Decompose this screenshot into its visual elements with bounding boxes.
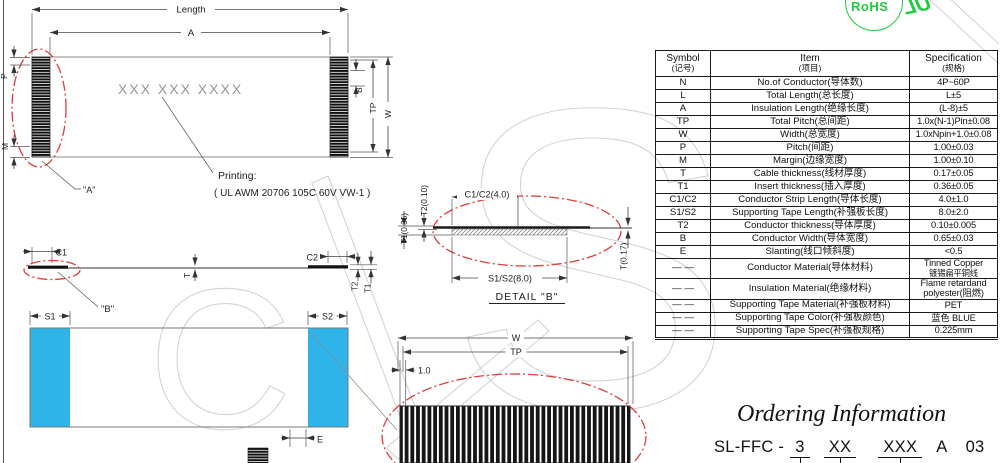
leader-tick (900, 458, 901, 463)
dim-w-label: W (383, 110, 393, 118)
table-row: T1Insert thickness(插入厚度)0.36±0.05 (656, 181, 998, 194)
part-number: SL-FFC - 3 XX XXX A 03 (714, 438, 985, 458)
table-row: AInsulation Length(绝缘长度)(L-8)±5 (656, 103, 998, 116)
table-row: WWidth(总宽度)1.0xNpin+1.0±0.08 (656, 129, 998, 142)
cell-spec: 4P~60P (910, 77, 998, 90)
cell-symbol: — — (656, 279, 711, 300)
supporting-tape-s1 (31, 329, 71, 427)
cell-symbol: S1/S2 (656, 207, 711, 220)
cell-item: Total Pitch(总间距) (711, 116, 910, 129)
table-row: — —Supporting Tape Color(补强板颜色)蓝色 BLUE (656, 312, 998, 325)
dim-c1-label: C1 (56, 248, 68, 258)
cell-symbol: L (656, 90, 711, 103)
spec-table: Symbol(记号) Item(项目) Specification(规格) NN… (655, 50, 998, 340)
ordering-title: Ordering Information (737, 401, 977, 428)
cell-spec: 0.225mm (910, 325, 998, 338)
cell-spec: Tinned Copper镀锡扁平铜线 (910, 259, 998, 279)
leader-line-b (58, 272, 98, 307)
cell-symbol: M (656, 155, 711, 168)
printing-label: Printing: (218, 170, 257, 182)
table-row: — —Supporting Tape Material(补强板材料)PET (656, 299, 998, 312)
table-row: — —Insulation Material(绝缘材料)Flame retard… (656, 279, 998, 300)
ffc-datasheet-page: S C (0, 0, 1000, 463)
cell-spec: 4.0±1.0 (910, 194, 998, 207)
col-header-spec-cn: (规格) (911, 64, 996, 74)
end-a-label: "A" (83, 185, 95, 195)
table-row: C1/C2Conductor Strip Length(导体长度)4.0±1.0 (656, 194, 998, 207)
detail-t-label: T(0.17) (619, 242, 629, 270)
part-seg-conductors-value: XX (829, 438, 852, 456)
cell-spec: 蓝色 BLUE (910, 312, 998, 325)
cell-spec: (L-8)±5 (910, 103, 998, 116)
end-b-label: "B" (101, 304, 114, 315)
cell-item: Supporting Tape Material(补强板材料) (711, 299, 910, 312)
cell-item: No.of Conductor(导体数) (711, 77, 910, 90)
table-row: ESlanting(线口倾斜度)<0.5 (656, 246, 998, 259)
cable-printed-marking: XXX XXX XXXX (118, 81, 243, 97)
cell-item: Supporting Tape Color(补强板颜色) (711, 312, 910, 325)
col-header-item-cn: (项目) (712, 64, 908, 74)
dim-tp-label: TP (368, 102, 378, 113)
rohs-badge-label: RoHS (851, 0, 888, 14)
dim-e-label: E (317, 435, 323, 445)
cell-item: Conductor Strip Length(导体长度) (711, 194, 910, 207)
dim-b-label: B (354, 87, 364, 93)
cell-symbol: T2 (656, 220, 711, 233)
cell-item: Insulation Length(绝缘长度) (711, 103, 910, 116)
cell-spec: 1.00±0.10 (910, 155, 998, 168)
cell-item: Supporting Tape Length(补强板长度) (711, 207, 910, 220)
cell-symbol: TP (656, 116, 711, 129)
col-header-item: Item(项目) (711, 51, 910, 77)
cell-symbol: B (656, 233, 711, 246)
part-prefix: SL-FFC - (714, 438, 784, 457)
cell-spec: 1.0x(N-1)Pin±0.08 (910, 116, 998, 129)
cell-symbol: T1 (656, 181, 711, 194)
dim-length-label: Length (176, 5, 205, 16)
cell-symbol: — — (656, 299, 711, 312)
cell-symbol: — — (656, 312, 711, 325)
detail-c1c2-label: C1/C2(4.0) (465, 190, 510, 200)
dim-p-label: P (0, 73, 9, 79)
cell-spec: 1.00±0.03 (910, 142, 998, 155)
cell-item: Total Length(总长度) (711, 90, 910, 103)
conductor-end-detail (248, 448, 268, 463)
dim-s2-label: S2 (322, 312, 333, 322)
cell-symbol: E (656, 246, 711, 259)
cell-symbol: T (656, 168, 711, 181)
printing-value: ( UL AWM 20706 105C 60V VW-1 ) (214, 188, 370, 199)
part-seg-03: 03 (966, 438, 985, 457)
cell-item: Width(总宽度) (711, 129, 910, 142)
dim-c2-label: C2 (306, 253, 318, 263)
part-seg-length: XXX (878, 438, 922, 458)
col-header-spec: Specification(规格) (910, 51, 998, 77)
cell-spec: <0.5 (910, 246, 998, 259)
col-header-symbol: Symbol(记号) (656, 51, 711, 77)
highlight-ellipse-b (24, 261, 80, 280)
cell-symbol: W (656, 129, 711, 142)
supporting-tape-s2 (308, 329, 348, 427)
part-seg-length-value: XXX (883, 438, 917, 456)
cell-spec: PET (910, 299, 998, 312)
table-row: — —Conductor Material(导体材料)Tinned Copper… (656, 259, 998, 279)
cell-item: Conductor thickness(导体厚度) (711, 220, 910, 233)
leader-line-a (42, 161, 81, 189)
cell-item: Conductor Width(导体宽度) (711, 233, 910, 246)
cell-item: Pitch(间距) (711, 142, 910, 155)
table-row: NNo.of Conductor(导体数)4P~60P (656, 77, 998, 90)
dim-t2-label: T2 (351, 281, 360, 291)
cell-item: Conductor Material(导体材料) (711, 259, 910, 279)
table-row: — —Supporting Tape Spec(补强板规格)0.225mm (656, 325, 998, 338)
detail-t1-label: T1(0.36) (400, 213, 409, 244)
leader-tick (840, 458, 841, 463)
cell-spec: 0.65±0.03 (910, 233, 998, 246)
table-row: BConductor Width(导体宽度)0.65±0.03 (656, 233, 998, 246)
detail-supporting-tape (452, 229, 567, 235)
cell-item: Margin(边缘宽度) (711, 155, 910, 168)
table-row: TCable thickness(线材厚度)0.17±0.05 (656, 168, 998, 181)
dim-t-label: T (182, 273, 192, 278)
cell-symbol: P (656, 142, 711, 155)
spec-table-header-row: Symbol(记号) Item(项目) Specification(规格) (656, 51, 998, 77)
table-row: TPTotal Pitch(总间距)1.0x(N-1)Pin±0.08 (656, 116, 998, 129)
cell-item: Cable thickness(线材厚度) (711, 168, 910, 181)
connector-end-a (32, 57, 50, 157)
svg-text:C: C (148, 248, 292, 463)
cell-spec: 0.17±0.05 (910, 168, 998, 181)
dim-a-label: A (188, 28, 195, 39)
cell-spec: Flame retardandpolyester(阻燃) (910, 279, 998, 300)
table-row: MMargin(边缘宽度)1.00±0.10 (656, 155, 998, 168)
connector-tp-label: TP (510, 347, 522, 357)
part-seg-a: A (936, 438, 947, 457)
connector-pitch-label: 1.0 (418, 366, 431, 376)
cell-item: Insulation Material(绝缘材料) (711, 279, 910, 300)
part-seg-type-value: 3 (795, 438, 804, 456)
dim-s1-label: S1 (44, 312, 55, 322)
cell-item: Insert thickness(插入厚度) (711, 181, 910, 194)
connector-end-right (330, 57, 348, 157)
detail-b-caption: DETAIL "B" (496, 291, 559, 303)
cell-spec: 1.0xNpin+1.0±0.08 (910, 129, 998, 142)
detail-s1s2-label: S1/S2(8.0) (488, 274, 532, 284)
part-seg-conductors: XX (824, 438, 857, 458)
cell-symbol: — — (656, 259, 711, 279)
leader-tick (800, 458, 801, 463)
table-row: S1/S2Supporting Tape Length(补强板长度)8.0±2.… (656, 207, 998, 220)
cable-body (32, 57, 348, 157)
col-header-symbol-cn: (记号) (657, 64, 709, 74)
connector-w-label: W (512, 333, 521, 343)
table-row: PPitch(间距)1.00±0.03 (656, 142, 998, 155)
top-view: Length A P M B TP W XXX XXX XXXX "A" Pri… (0, 4, 393, 200)
cell-spec: L±5 (910, 90, 998, 103)
cell-spec: 8.0±2.0 (910, 207, 998, 220)
part-seg-type: 3 (790, 438, 809, 458)
cell-item: Supporting Tape Spec(补强板规格) (711, 325, 910, 338)
table-row: T2Conductor thickness(导体厚度)0.10±0.005 (656, 220, 998, 233)
connector-fingers (401, 407, 630, 463)
table-row: LTotal Length(总长度)L±5 (656, 90, 998, 103)
cell-symbol: — — (656, 325, 711, 338)
cell-symbol: N (656, 77, 711, 90)
leader-line-printing (162, 97, 213, 173)
cell-symbol: C1/C2 (656, 194, 711, 207)
cell-spec: 0.36±0.05 (910, 181, 998, 194)
dim-t1-label: T1 (364, 283, 373, 293)
detail-t2-label: T2(0.10) (420, 185, 429, 216)
dim-m-label: M (0, 143, 10, 150)
cell-spec: 0.10±0.005 (910, 220, 998, 233)
cell-symbol: A (656, 103, 711, 116)
cell-item: Slanting(线口倾斜度) (711, 246, 910, 259)
